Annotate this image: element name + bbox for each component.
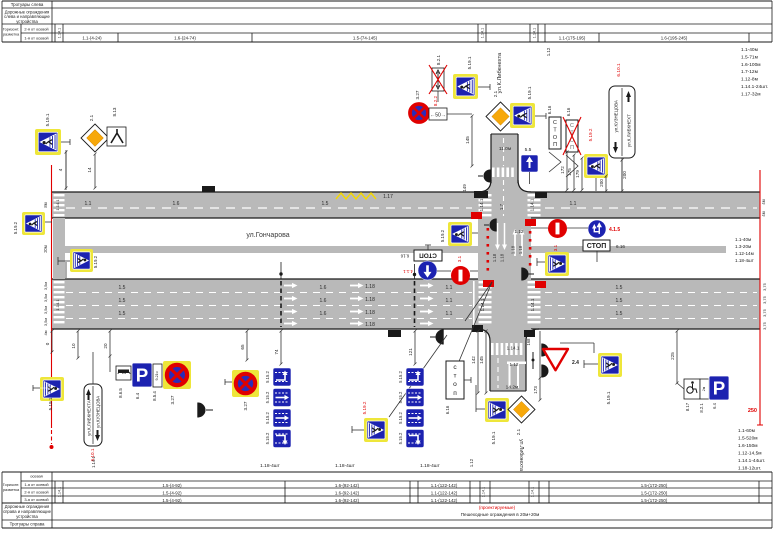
svg-text:8.2.2: 8.2.2 — [433, 95, 438, 106]
svg-text:Тротуары справа: Тротуары справа — [10, 522, 45, 527]
svg-text:1.12-14м: 1.12-14м — [735, 251, 754, 256]
svg-text:5.15.2: 5.15.2 — [398, 371, 403, 383]
svg-text:1.1-(175-195): 1.1-(175-195) — [559, 36, 586, 41]
svg-text:1.5-(172-250): 1.5-(172-250) — [641, 491, 668, 496]
svg-text:3,5м: 3,5м — [43, 282, 48, 291]
svg-text:1.1: 1.1 — [570, 201, 577, 207]
svg-text:200: 200 — [622, 171, 627, 179]
svg-text:1.14.1-44шт.: 1.14.1-44шт. — [738, 458, 765, 464]
svg-text:5.19.2: 5.19.2 — [93, 255, 98, 268]
svg-text:ул.Гончарова: ул.Гончарова — [246, 232, 289, 239]
svg-text:1.6-(195-245): 1.6-(195-245) — [661, 36, 688, 41]
svg-text:1.18: 1.18 — [365, 310, 375, 316]
svg-text:1.6: 1.6 — [320, 298, 327, 304]
svg-text:5.15.2: 5.15.2 — [265, 432, 270, 444]
svg-text:1.18-12шт.: 1.18-12шт. — [738, 466, 761, 472]
svg-text:1.18-4шт: 1.18-4шт — [260, 463, 280, 469]
svg-text:5.19.1: 5.19.1 — [527, 86, 532, 99]
svg-text:1.18: 1.18 — [365, 284, 375, 290]
svg-text:6.10.1: 6.10.1 — [616, 63, 622, 77]
svg-text:145: 145 — [465, 136, 470, 144]
svg-text:(проектируемые): (проектируемые) — [479, 505, 516, 510]
svg-text:10: 10 — [71, 343, 76, 349]
svg-text:3.27: 3.27 — [415, 90, 420, 99]
svg-text:1.1-(122-142): 1.1-(122-142) — [431, 491, 458, 496]
svg-text:5.19.1: 5.19.1 — [606, 391, 611, 404]
svg-text:5.15.2: 5.15.2 — [265, 371, 270, 383]
svg-text:3,5м: 3,5м — [43, 294, 48, 303]
svg-text:2.1: 2.1 — [89, 114, 94, 121]
svg-text:225: 225 — [670, 352, 675, 360]
svg-text:О: О — [553, 135, 557, 141]
svg-text:6.16: 6.16 — [445, 405, 450, 414]
svg-text:1.5-(4-92): 1.5-(4-92) — [162, 498, 182, 503]
svg-text:5.15.2: 5.15.2 — [265, 391, 270, 403]
svg-text:П: П — [570, 145, 574, 151]
svg-text:5.15.2: 5.15.2 — [398, 391, 403, 403]
svg-text:1.1-(122-142): 1.1-(122-142) — [431, 483, 458, 488]
svg-text:8.13: 8.13 — [112, 107, 117, 116]
svg-text:4м: 4м — [761, 199, 766, 204]
svg-text:1.5-(172-250): 1.5-(172-250) — [641, 498, 668, 503]
svg-text:1.5-71м: 1.5-71м — [741, 54, 758, 60]
svg-text:1.12-14,5м: 1.12-14,5м — [738, 451, 762, 457]
svg-text:6.16: 6.16 — [400, 254, 409, 259]
svg-text:2.1: 2.1 — [516, 428, 521, 435]
svg-text:200: 200 — [599, 179, 604, 187]
svg-text:ул.КУЗНЕЦОВА: ул.КУЗНЕЦОВА — [613, 100, 618, 132]
svg-text:5.19.1: 5.19.1 — [491, 431, 496, 444]
svg-text:1.18-4шт: 1.18-4шт — [420, 463, 440, 469]
svg-text:1.14.1: 1.14.1 — [482, 487, 486, 498]
svg-text:2м: 2м — [702, 386, 706, 391]
svg-text:20м: 20м — [43, 245, 48, 253]
svg-text:1.6-(24-74): 1.6-(24-74) — [174, 36, 196, 41]
svg-text:о: о — [453, 381, 457, 388]
svg-text:1.1-60м: 1.1-60м — [738, 428, 755, 434]
svg-text:P: P — [713, 378, 725, 399]
svg-text:п: п — [453, 390, 457, 397]
svg-text:1.14.1: 1.14.1 — [91, 456, 96, 468]
svg-text:1.5-(172-250): 1.5-(172-250) — [641, 483, 668, 488]
svg-text:1.14.1: 1.14.1 — [507, 346, 520, 351]
svg-text:1.6: 1.6 — [320, 311, 327, 317]
svg-text:3.1: 3.1 — [457, 255, 462, 262]
svg-text:1.14.1: 1.14.1 — [533, 28, 537, 39]
svg-text:1.5: 1.5 — [119, 311, 126, 317]
svg-text:1.5: 1.5 — [616, 298, 623, 304]
svg-text:ул.К.Либкнехта: ул.К.Либкнехта — [497, 52, 503, 93]
svg-text:1.18-4шт: 1.18-4шт — [335, 463, 355, 469]
svg-text:3.27: 3.27 — [170, 395, 175, 404]
svg-text:6.16: 6.16 — [566, 107, 571, 116]
svg-text:3,75: 3,75 — [762, 295, 767, 304]
svg-text:Горизонт.: Горизонт. — [3, 28, 19, 32]
svg-text:5.19.1: 5.19.1 — [467, 56, 472, 69]
svg-text:8.2.1: 8.2.1 — [436, 54, 441, 65]
svg-text:1.5-520м: 1.5-520м — [738, 436, 758, 442]
svg-text:0: 0 — [45, 342, 50, 345]
svg-text:1.18: 1.18 — [518, 245, 523, 254]
svg-text:1.6-150м: 1.6-150м — [738, 443, 758, 449]
svg-text:1.1: 1.1 — [446, 298, 453, 304]
svg-text:4.1.5: 4.1.5 — [609, 227, 620, 233]
svg-text:СТОП: СТОП — [419, 251, 437, 258]
svg-text:6.16: 6.16 — [616, 244, 625, 249]
svg-text:1.12: 1.12 — [469, 458, 474, 467]
svg-text:4.1.1: 4.1.1 — [403, 269, 413, 274]
svg-text:1.14.1: 1.14.1 — [479, 198, 484, 211]
svg-text:8.5.4: 8.5.4 — [152, 391, 157, 401]
svg-text:1.18: 1.18 — [500, 253, 505, 262]
svg-text:1.7: 1.7 — [499, 203, 504, 210]
svg-text:1-я от осевой: 1-я от осевой — [24, 482, 48, 487]
svg-text:1.18-4шт: 1.18-4шт — [735, 258, 755, 263]
svg-text:20: 20 — [103, 343, 108, 349]
svg-text:т: т — [453, 373, 456, 380]
svg-text:5.19.2: 5.19.2 — [13, 221, 18, 234]
svg-text:2.1: 2.1 — [493, 90, 498, 97]
svg-text:1.14.1: 1.14.1 — [58, 487, 62, 498]
svg-text:1.5-(74-145): 1.5-(74-145) — [353, 36, 378, 41]
svg-text:8м: 8м — [43, 202, 48, 207]
svg-text:3,5м: 3,5м — [43, 306, 48, 315]
svg-text:1.14.1: 1.14.1 — [481, 28, 485, 39]
svg-text:4м: 4м — [761, 211, 766, 216]
svg-text:8.6.5: 8.6.5 — [118, 388, 123, 398]
svg-text:1.6: 1.6 — [320, 285, 327, 291]
svg-text:3,75: 3,75 — [762, 321, 767, 330]
svg-text:1.1-(4-24): 1.1-(4-24) — [82, 36, 102, 41]
svg-text:3.27: 3.27 — [243, 401, 248, 410]
svg-text:1.1: 1.1 — [85, 201, 92, 207]
svg-text:1.1-40м: 1.1-40м — [741, 47, 758, 53]
svg-text:2-я от осевой: 2-я от осевой — [24, 490, 48, 495]
svg-text:121: 121 — [408, 348, 413, 356]
svg-text:осевая: осевая — [30, 474, 43, 479]
svg-text:3,75: 3,75 — [762, 282, 767, 291]
svg-text:P: P — [136, 365, 148, 386]
svg-text:149: 149 — [462, 184, 467, 192]
svg-text:Горизонт.: Горизонт. — [3, 483, 19, 487]
svg-text:1.18: 1.18 — [365, 297, 375, 303]
svg-text:ул.Либкнехта: ул.Либкнехта — [518, 439, 524, 471]
svg-text:1.14.1: 1.14.1 — [530, 298, 535, 311]
svg-text:4: 4 — [58, 168, 63, 171]
svg-text:2-я от осевой: 2-я от осевой — [24, 27, 48, 32]
svg-text:П: П — [553, 142, 557, 148]
svg-text:74: 74 — [274, 349, 279, 355]
svg-text:9-21ч: 9-21ч — [155, 371, 159, 380]
svg-text:1.14.1: 1.14.1 — [55, 299, 60, 311]
svg-text:2.4: 2.4 — [572, 360, 579, 366]
svg-text:1.6-(92-142): 1.6-(92-142) — [335, 498, 360, 503]
svg-text:5.19.1: 5.19.1 — [45, 113, 50, 126]
svg-text:1.18: 1.18 — [492, 253, 497, 262]
svg-text:1.12-8м: 1.12-8м — [741, 77, 758, 83]
svg-text:разметка: разметка — [3, 488, 20, 492]
svg-text:14: 14 — [87, 167, 92, 173]
svg-text:1.1-40м: 1.1-40м — [735, 237, 751, 242]
svg-text:устройства: устройства — [16, 514, 38, 519]
svg-text:1.14.1: 1.14.1 — [531, 487, 535, 498]
svg-text:11.0м: 11.0м — [499, 146, 511, 152]
svg-text:1.3-20м: 1.3-20м — [735, 244, 751, 249]
svg-text:1-я от осевой: 1-я от осевой — [24, 36, 48, 41]
svg-text:С: С — [570, 123, 574, 129]
svg-text:1.5: 1.5 — [119, 285, 126, 291]
svg-text:1.14.1: 1.14.1 — [530, 198, 535, 211]
svg-text:5.15.2: 5.15.2 — [398, 432, 403, 444]
svg-text:1.12: 1.12 — [515, 229, 524, 234]
svg-text:1.17-32м: 1.17-32м — [741, 91, 761, 97]
svg-text:5.19.2: 5.19.2 — [588, 128, 593, 141]
svg-text:6.4: 6.4 — [712, 402, 717, 408]
svg-text:1.5: 1.5 — [322, 201, 329, 207]
svg-text:1.1: 1.1 — [446, 311, 453, 317]
svg-text:250: 250 — [748, 408, 757, 414]
svg-text:65: 65 — [240, 344, 245, 350]
svg-text:1.14.1: 1.14.1 — [55, 199, 60, 211]
svg-text:1.6-(92-142): 1.6-(92-142) — [335, 483, 360, 488]
svg-text:1.7-12м: 1.7-12м — [741, 69, 758, 75]
svg-text:179: 179 — [575, 170, 580, 178]
svg-text:1.6-(92-142): 1.6-(92-142) — [335, 491, 360, 496]
svg-text:←50→: ←50→ — [430, 113, 446, 119]
svg-text:8.17: 8.17 — [685, 402, 690, 411]
svg-text:разметка: разметка — [3, 33, 20, 37]
svg-text:1.12: 1.12 — [546, 47, 551, 56]
svg-text:145: 145 — [479, 356, 484, 364]
svg-text:3.1: 3.1 — [553, 244, 558, 251]
svg-text:3-я от осевой: 3-я от осевой — [24, 497, 48, 502]
svg-text:3,75: 3,75 — [762, 308, 767, 317]
svg-text:172: 172 — [560, 166, 565, 174]
svg-text:1.14.1: 1.14.1 — [58, 28, 62, 39]
svg-text:5.19.2: 5.19.2 — [440, 229, 445, 242]
svg-text:175: 175 — [567, 168, 572, 176]
svg-text:6.4: 6.4 — [135, 392, 140, 399]
svg-text:5.5: 5.5 — [525, 147, 532, 153]
svg-text:173: 173 — [533, 386, 538, 394]
svg-text:устройства: устройства — [16, 19, 38, 24]
svg-text:1.1-(122-142): 1.1-(122-142) — [431, 498, 458, 503]
svg-text:Тротуары слева: Тротуары слева — [11, 2, 44, 7]
svg-text:1.5: 1.5 — [616, 311, 623, 317]
svg-text:ул.К.ЛИБКНЕХТ: ул.К.ЛИБКНЕХТ — [626, 114, 631, 147]
svg-text:5.19.1: 5.19.1 — [48, 397, 53, 410]
svg-text:142: 142 — [471, 356, 476, 364]
svg-text:1.12: 1.12 — [510, 362, 519, 367]
svg-text:5.19.2: 5.19.2 — [362, 401, 367, 414]
svg-text:1.6: 1.6 — [173, 201, 180, 207]
svg-text:3,5м: 3,5м — [43, 318, 48, 327]
svg-text:1.5-(4-92): 1.5-(4-92) — [162, 491, 182, 496]
svg-text:ул.КУЗНЕЦОВА: ул.КУЗНЕЦОВА — [95, 396, 100, 428]
svg-text:С: С — [553, 120, 557, 126]
svg-text:1.6-100м: 1.6-100м — [741, 62, 761, 68]
svg-text:1.17: 1.17 — [383, 194, 393, 200]
svg-text:5.15.2: 5.15.2 — [265, 412, 270, 424]
svg-text:СТОП: СТОП — [587, 243, 606, 250]
svg-text:1.1: 1.1 — [446, 285, 453, 291]
svg-text:1.18: 1.18 — [365, 322, 375, 328]
svg-text:1.14.1-24шт.: 1.14.1-24шт. — [741, 84, 768, 90]
svg-text:1.5: 1.5 — [616, 285, 623, 291]
svg-text:6.16: 6.16 — [547, 105, 552, 114]
svg-text:Пешеходные ограждения в 20м+20: Пешеходные ограждения в 20м+20м — [461, 512, 540, 517]
svg-text:1.18: 1.18 — [511, 245, 516, 254]
svg-text:168: 168 — [526, 338, 531, 346]
svg-text:1.5: 1.5 — [119, 298, 126, 304]
svg-text:ул.К.ЛИБКНЕХТА: ул.К.ЛИБКНЕХТА — [86, 400, 91, 436]
svg-text:14.2м: 14.2м — [506, 385, 519, 391]
svg-text:5.15.2: 5.15.2 — [398, 412, 403, 424]
svg-text:8.2.1: 8.2.1 — [699, 403, 704, 413]
svg-text:4м: 4м — [43, 330, 48, 335]
svg-text:1.5-(4-92): 1.5-(4-92) — [162, 483, 182, 488]
